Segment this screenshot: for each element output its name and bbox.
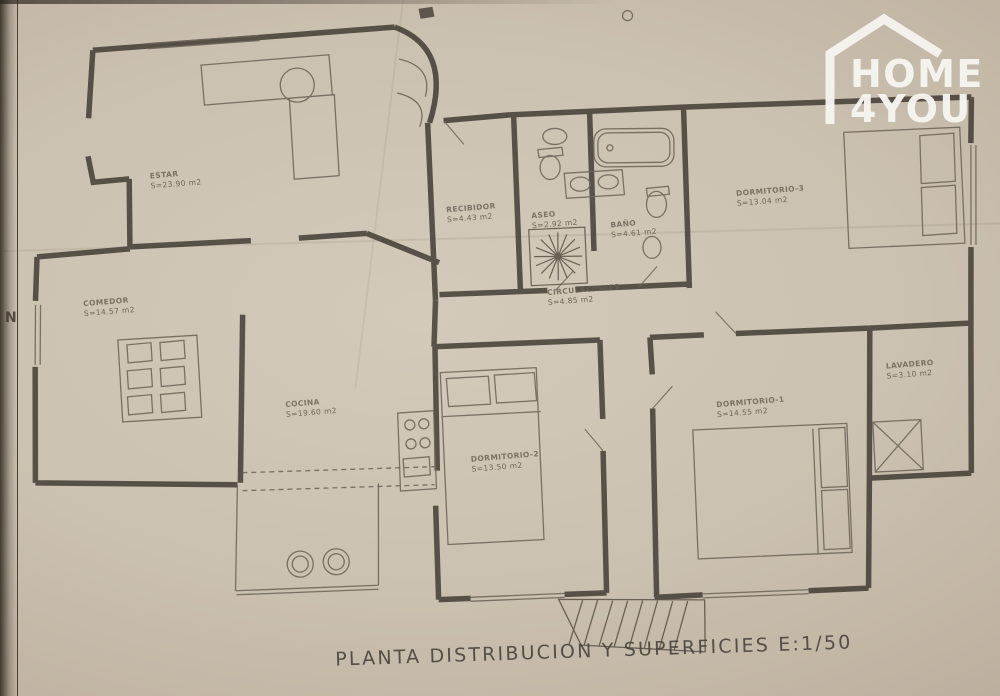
brand-text-4you: 4YOU — [850, 87, 972, 128]
scanned-floor-plan-photo: ESTAR S=23.90 m2 COMEDOR S=14.57 m2 COCI… — [0, 0, 1000, 696]
sunburst-ornament — [529, 227, 588, 286]
aseo-sink — [543, 128, 567, 144]
photo-left-edge — [0, 0, 18, 696]
room-label-aseo: ASEO S=2.92 m2 — [531, 208, 578, 232]
bidet — [643, 236, 661, 258]
room-label-estar: ESTAR S=23.90 m2 — [149, 167, 201, 191]
shower-box — [873, 420, 924, 473]
bathtub — [594, 128, 674, 167]
watermark-logo: HOME 4YOU — [822, 10, 994, 128]
ink-mark — [418, 7, 434, 19]
room-label-comedor: COMEDOR S=14.57 m2 — [83, 295, 135, 319]
bed-dormitorio-3 — [844, 127, 965, 248]
room-label-cocina: COCINA S=19.60 m2 — [285, 396, 337, 420]
kitchen-counter — [398, 411, 437, 491]
sofa — [201, 55, 339, 180]
room-label-bano: BAÑO S=4.61 m2 — [610, 217, 657, 241]
dining-chairs — [127, 340, 186, 415]
kitchen-worktop-dashed — [242, 467, 434, 491]
room-label-recibidor: RECIBIDOR S=4.43 m2 — [446, 201, 497, 225]
aseo-wc — [540, 155, 560, 179]
photo-top-edge — [0, 0, 620, 4]
bed-dormitorio-1 — [693, 423, 852, 559]
north-label: N — [5, 310, 17, 326]
room-label-lavadero: LAVADERO S=3.10 m2 — [886, 358, 935, 382]
